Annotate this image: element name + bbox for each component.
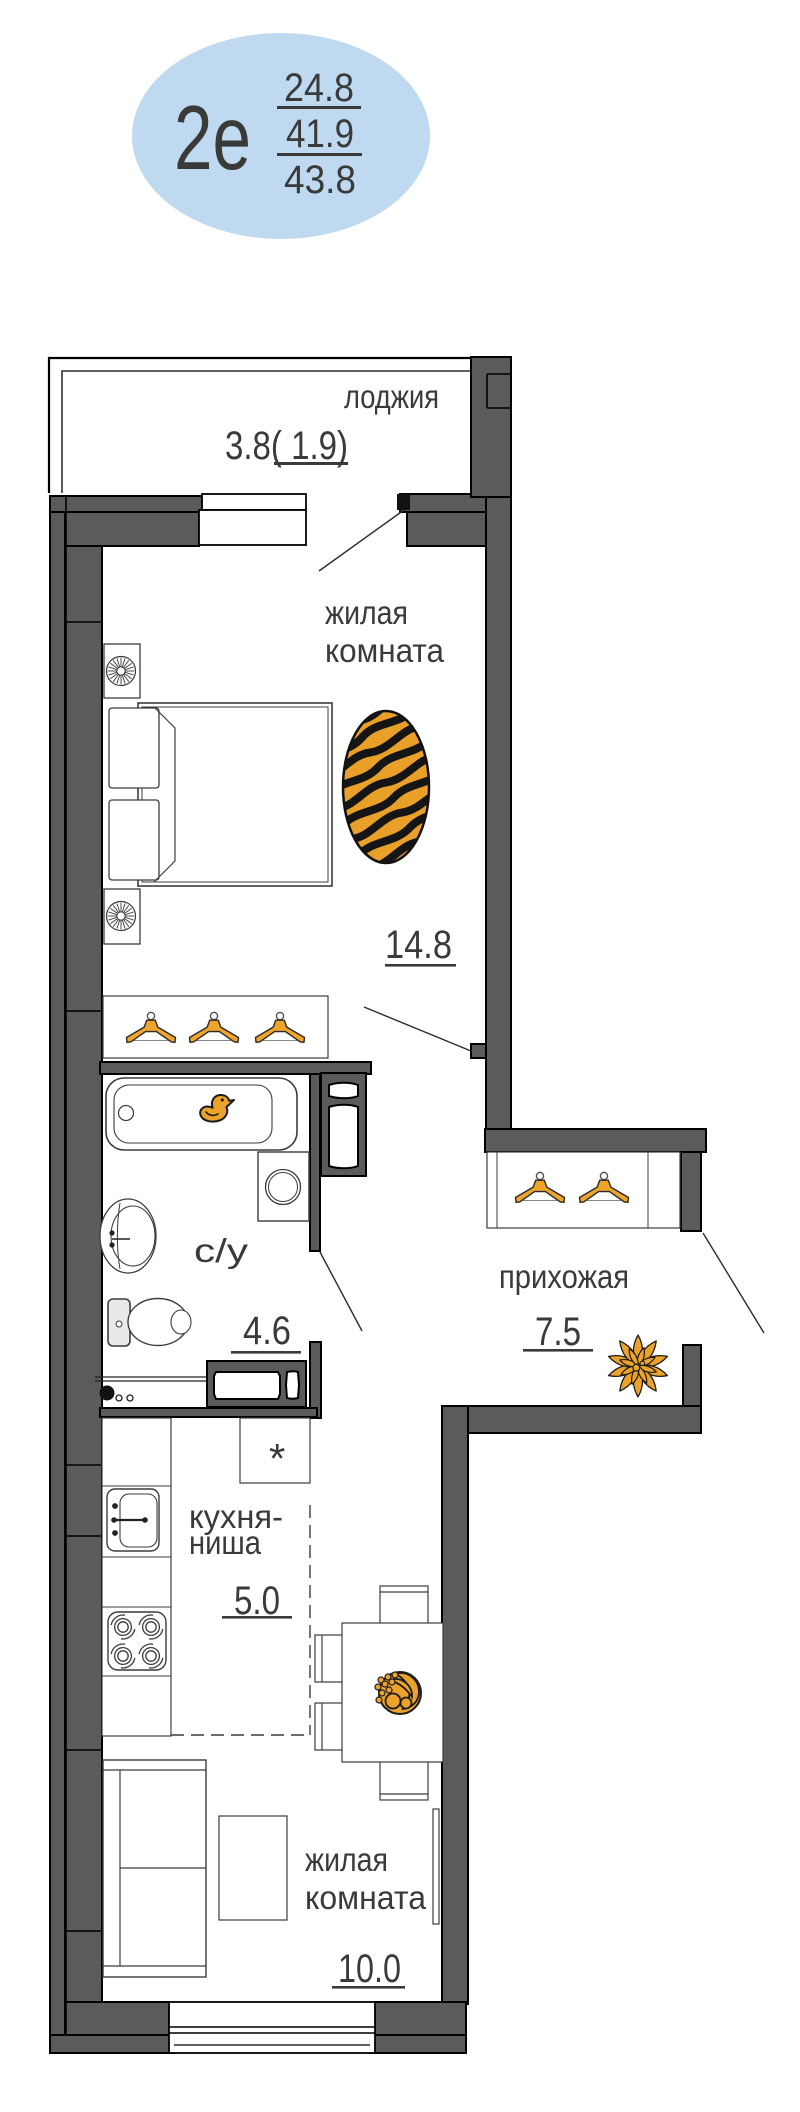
svg-text:комната: комната xyxy=(305,1879,427,1916)
svg-text:ниша: ниша xyxy=(189,1524,262,1561)
svg-text:*: * xyxy=(269,1435,285,1482)
svg-text:4.6: 4.6 xyxy=(243,1309,291,1353)
svg-text:14.8: 14.8 xyxy=(385,923,452,967)
svg-text:10.0: 10.0 xyxy=(338,1947,401,1991)
svg-text:3.8( 1.9): 3.8( 1.9) xyxy=(225,424,348,468)
svg-text:с/у: с/у xyxy=(194,1232,249,1269)
svg-text:жилая: жилая xyxy=(325,594,408,631)
svg-text:жилая: жилая xyxy=(305,1841,388,1878)
svg-text:7.5: 7.5 xyxy=(535,1310,581,1354)
svg-text:прихожая: прихожая xyxy=(499,1258,629,1295)
svg-text:41.9: 41.9 xyxy=(286,112,354,156)
svg-text:43.8: 43.8 xyxy=(284,158,356,202)
svg-text:лоджия: лоджия xyxy=(344,378,439,415)
svg-text:2е: 2е xyxy=(174,88,251,189)
svg-text:24.8: 24.8 xyxy=(284,66,354,110)
svg-text:комната: комната xyxy=(325,632,445,669)
